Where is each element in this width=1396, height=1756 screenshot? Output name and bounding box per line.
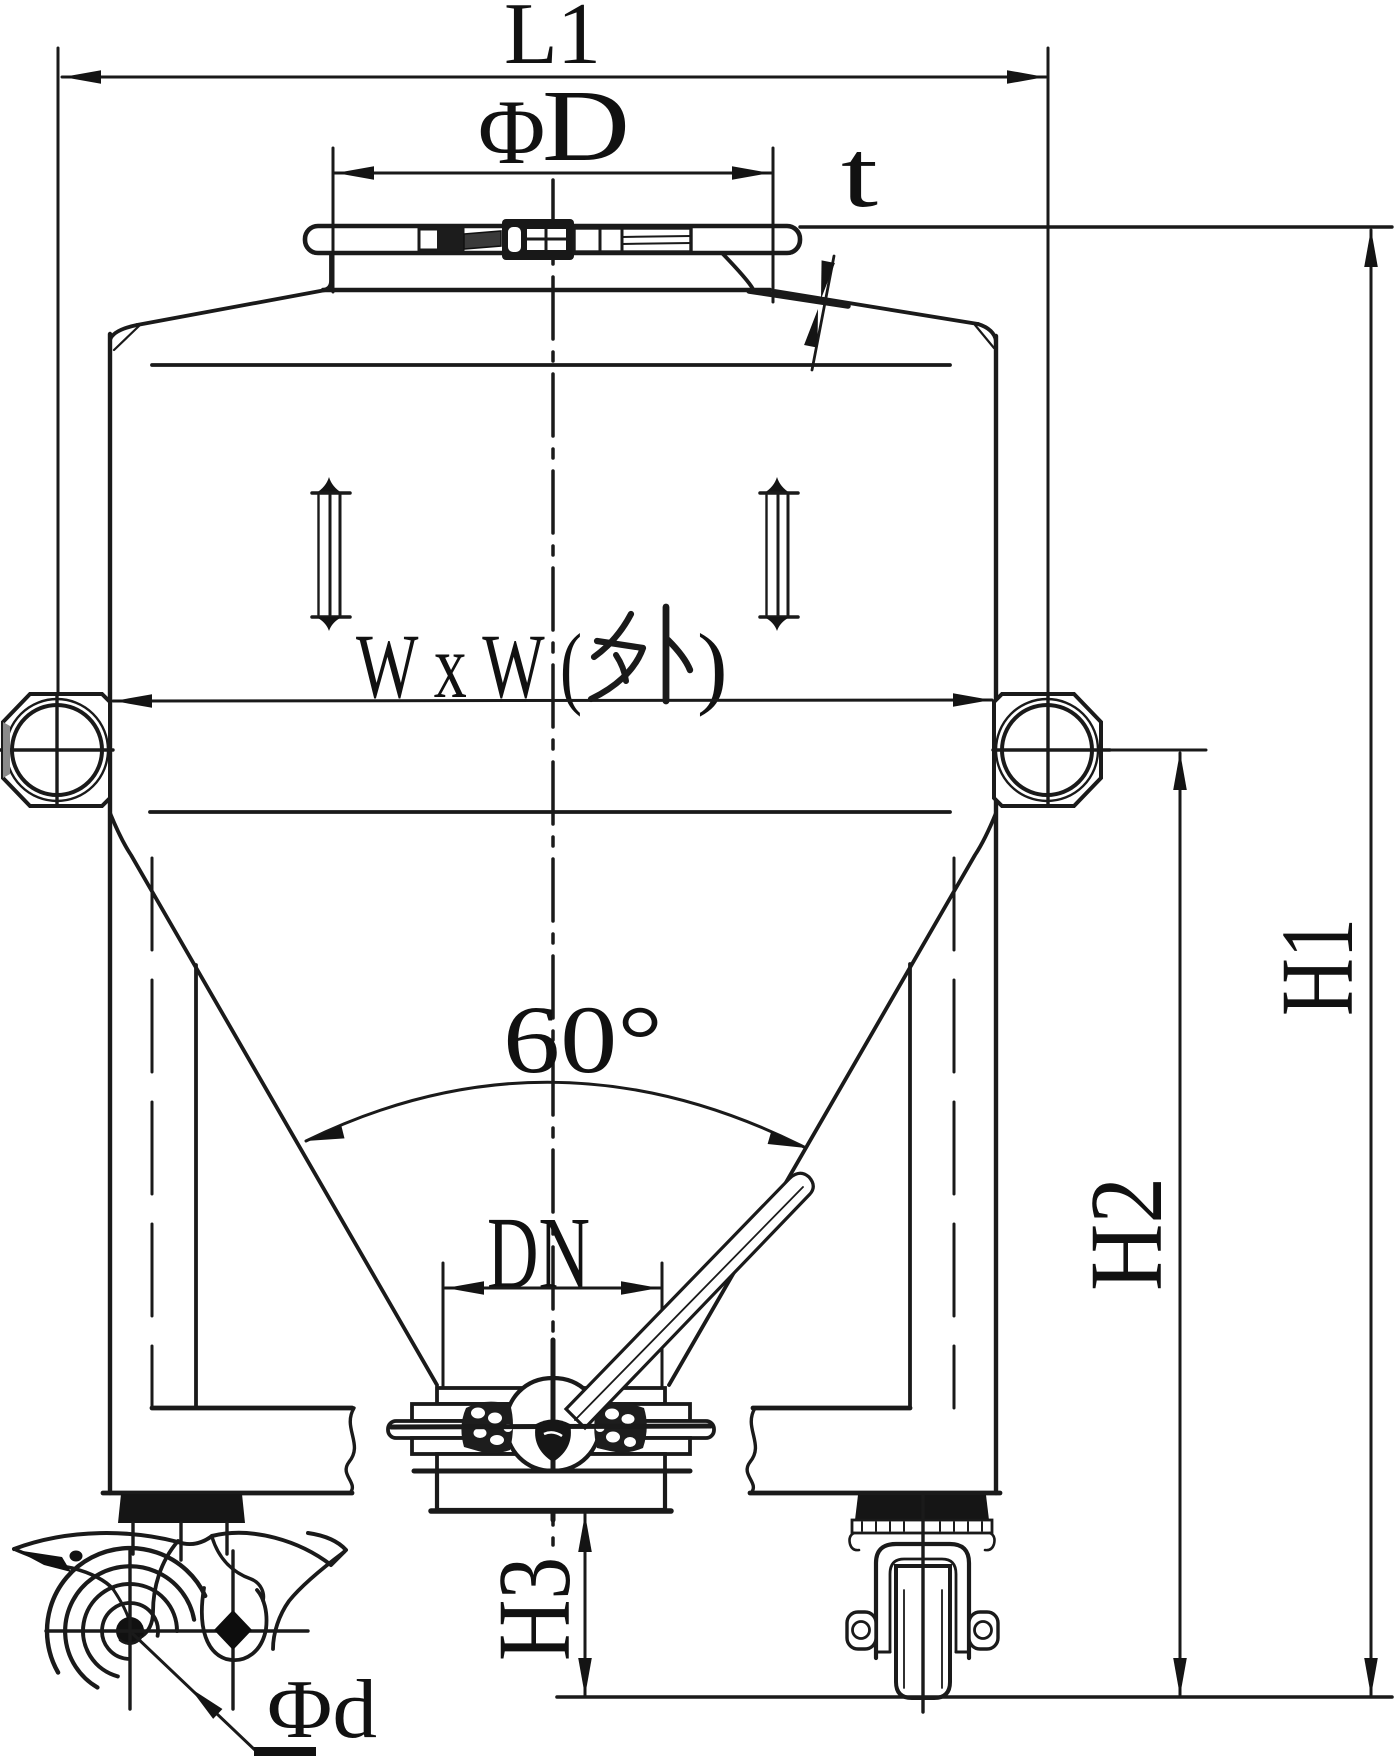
svg-text:Φd: Φd [267,1663,377,1756]
svg-text:H2: H2 [1069,1177,1184,1291]
svg-text:60°: 60° [503,986,663,1093]
svg-text:D: D [542,70,630,183]
svg-text:H1: H1 [1260,918,1375,1016]
svg-text:DN: DN [487,1196,590,1311]
svg-text:Φ: Φ [478,81,545,183]
svg-text:H3: H3 [477,1557,592,1661]
svg-text:t: t [841,120,878,227]
